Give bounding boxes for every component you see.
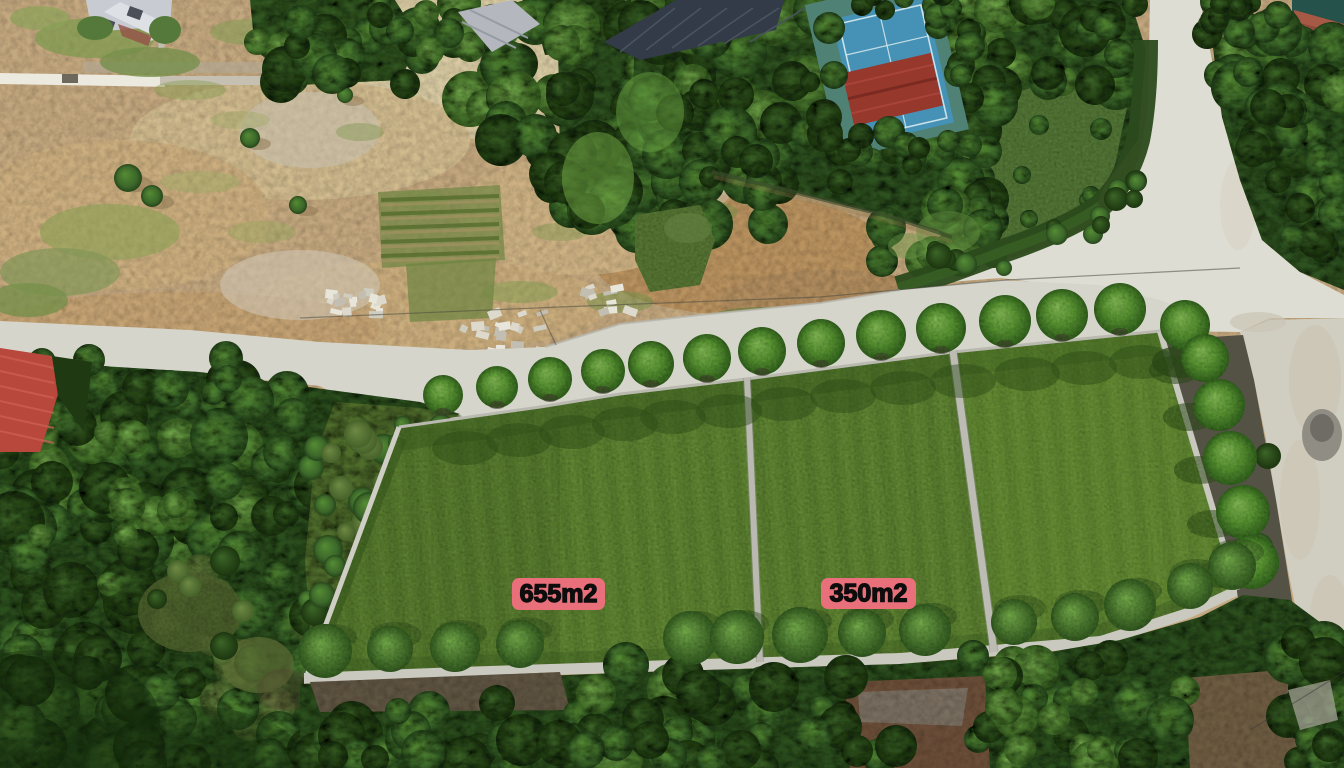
svg-text:350m2: 350m2 [830, 580, 908, 608]
svg-text:655m2: 655m2 [520, 580, 598, 608]
